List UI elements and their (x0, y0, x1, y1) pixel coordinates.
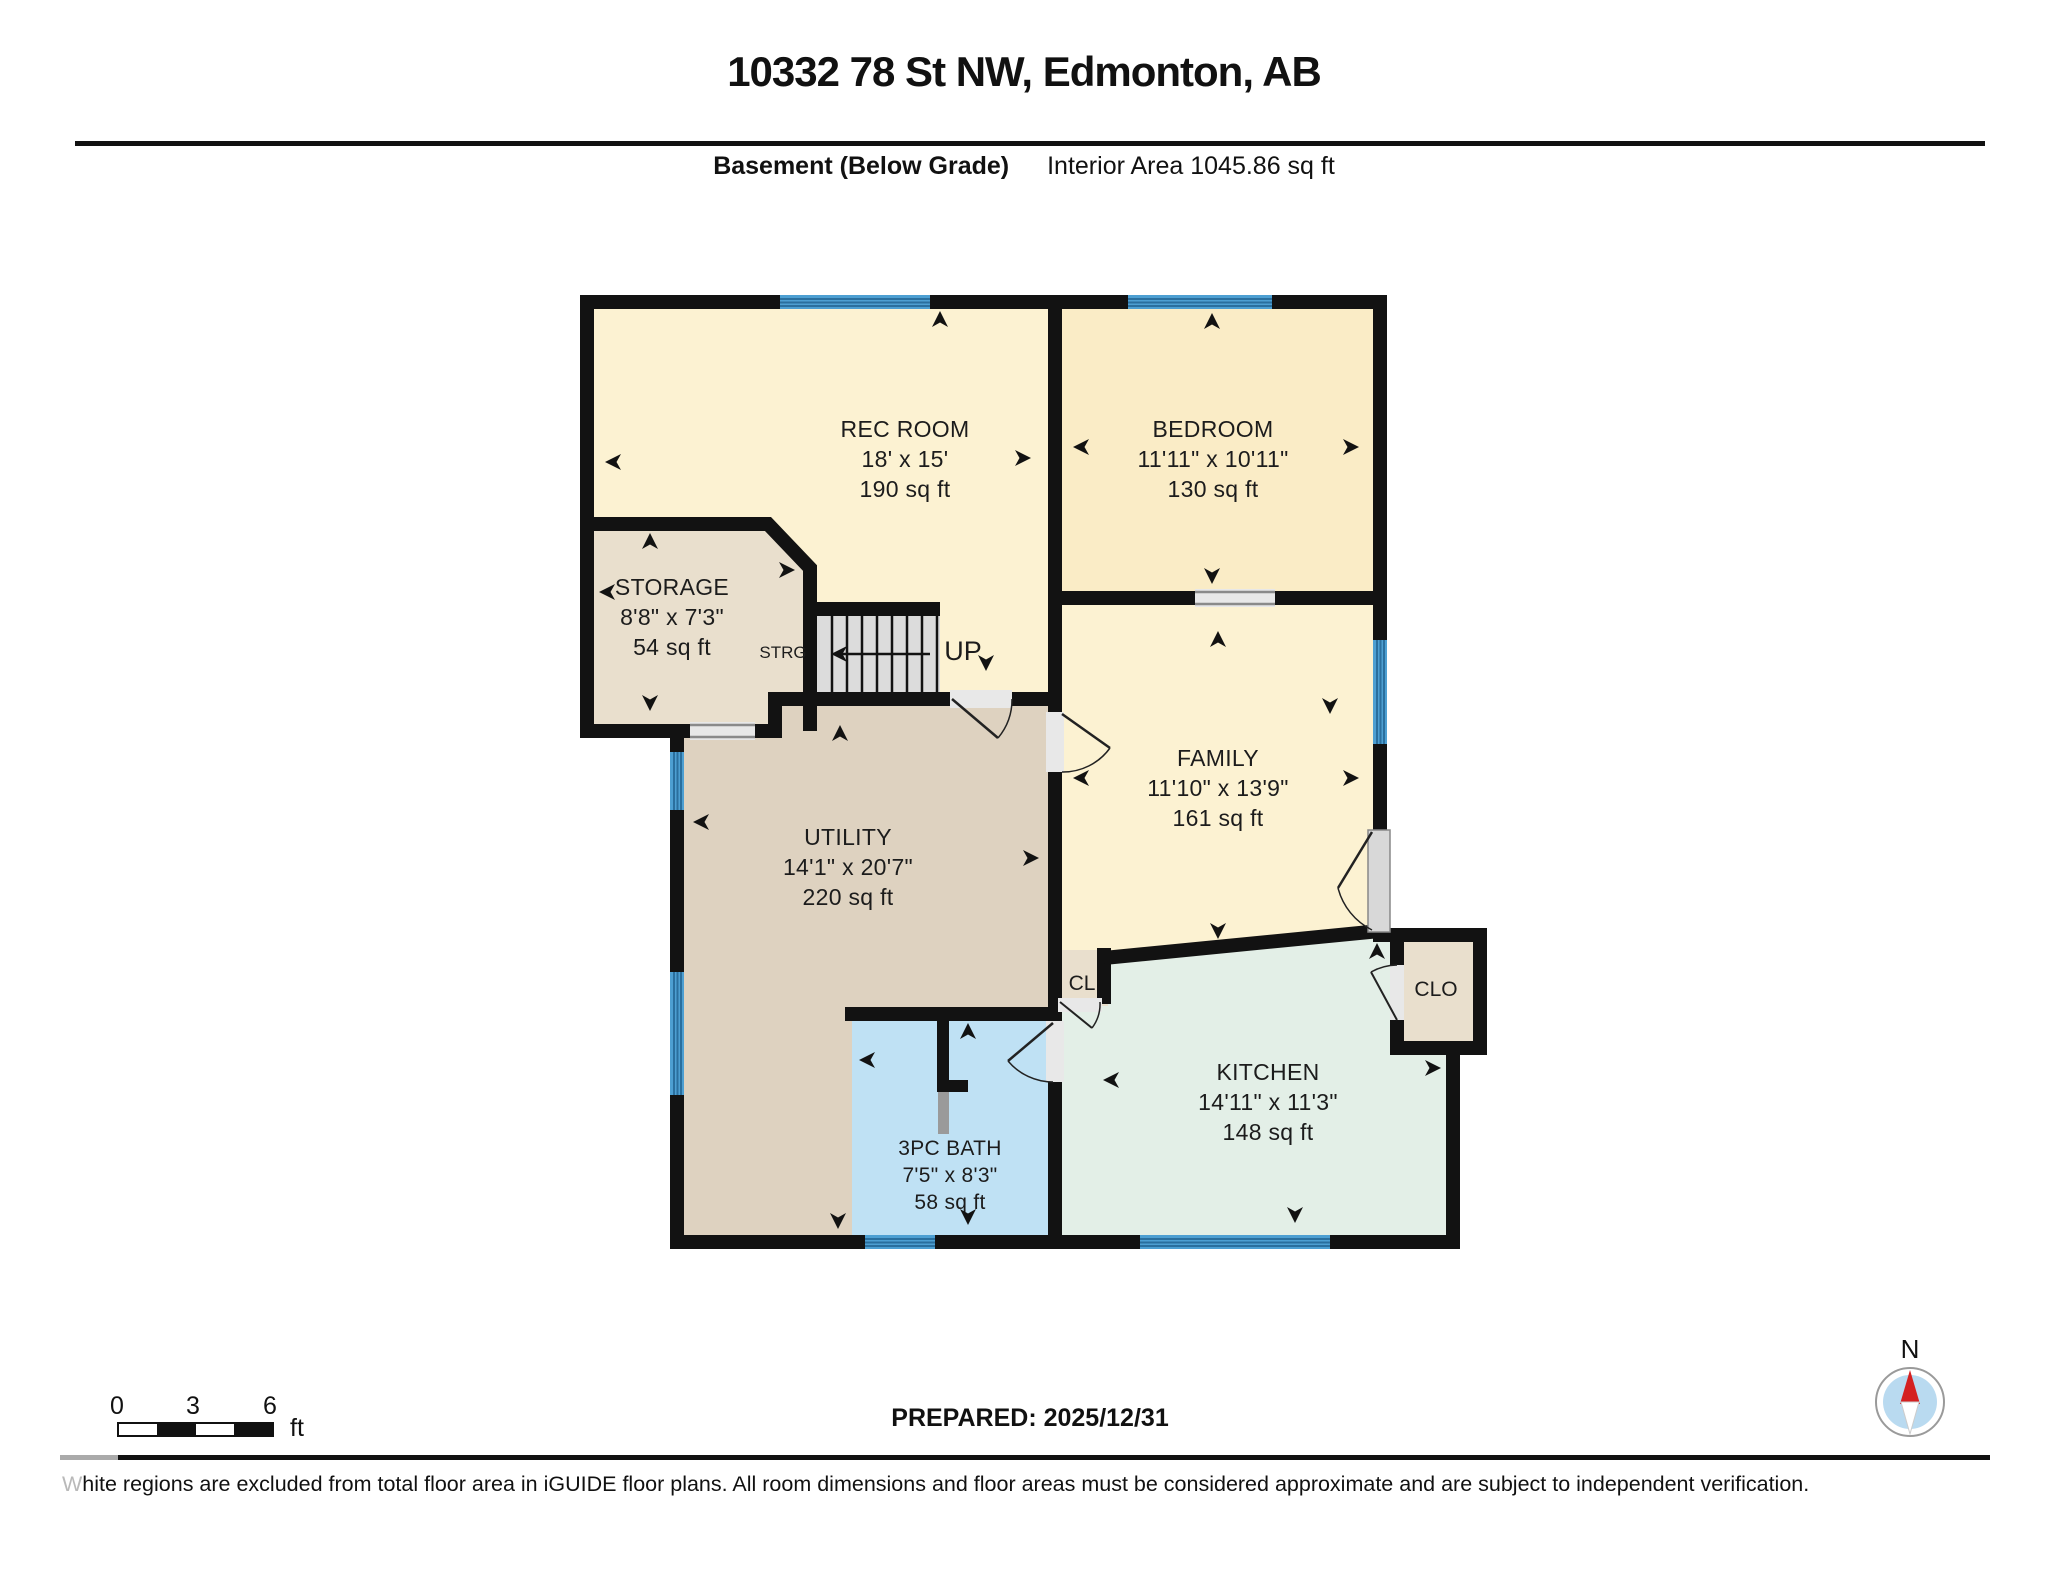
window-utility-upper (670, 752, 684, 810)
area-rec-room: 190 sq ft (860, 476, 951, 502)
label-strg: STRG (759, 643, 806, 662)
label-bath: 3PC BATH (898, 1137, 1002, 1160)
disclaimer-body: hite regions are excluded from total flo… (82, 1472, 1809, 1496)
floorplan-page: 10332 78 St NW, Edmonton, AB Basement (B… (0, 0, 2048, 1583)
scale-bar-segments (117, 1422, 274, 1437)
disclaimer-watermark-letter: W (62, 1472, 82, 1496)
window-kitchen (1140, 1235, 1330, 1249)
window-bedroom (1128, 295, 1272, 309)
dims-kitchen: 14'11" x 11'3" (1198, 1089, 1338, 1115)
dims-bath: 7'5" x 8'3" (902, 1164, 997, 1187)
staircase (817, 612, 940, 699)
disclaimer-text: White regions are excluded from total fl… (62, 1472, 1962, 1497)
area-utility: 220 sq ft (803, 884, 894, 910)
label-closet-cl: CL (1069, 972, 1096, 995)
dims-family: 11'10" x 13'9" (1147, 775, 1288, 801)
scale-tick-0: 0 (110, 1392, 124, 1421)
area-bedroom: 130 sq ft (1168, 476, 1259, 502)
window-rec (780, 295, 930, 309)
footer-divider-gray (60, 1455, 118, 1460)
scale-tick-6: 6 (263, 1392, 277, 1421)
scale-tick-3: 3 (186, 1392, 200, 1421)
label-utility: UTILITY (804, 824, 892, 850)
label-closet-clo: CLO (1414, 978, 1457, 1001)
compass-north-label: N (1901, 1334, 1920, 1364)
dims-rec-room: 18' x 15' (862, 446, 949, 472)
footer-divider (118, 1455, 1990, 1460)
dims-utility: 14'1" x 20'7" (783, 854, 913, 880)
area-storage: 54 sq ft (633, 634, 711, 660)
label-stairs-up: UP (944, 636, 982, 666)
dims-storage: 8'8" x 7'3" (620, 604, 724, 630)
window-bath (865, 1235, 935, 1249)
prepared-date: PREPARED: 2025/12/31 (830, 1404, 1230, 1433)
area-family: 161 sq ft (1173, 805, 1264, 831)
label-bedroom: BEDROOM (1153, 416, 1274, 442)
scale-unit-label: ft (290, 1414, 304, 1443)
window-family (1373, 640, 1387, 744)
label-storage: STORAGE (615, 574, 729, 600)
label-rec-room: REC ROOM (841, 416, 970, 442)
area-kitchen: 148 sq ft (1223, 1119, 1314, 1145)
window-utility-lower (670, 972, 684, 1095)
floorplan-drawing: REC ROOM 18' x 15' 190 sq ft BEDROOM 11'… (0, 0, 2048, 1583)
room-fills (587, 295, 1476, 1242)
bath-fixture (938, 1092, 949, 1134)
compass: N (1858, 1328, 1962, 1453)
label-family: FAMILY (1177, 745, 1259, 771)
label-kitchen: KITCHEN (1216, 1059, 1319, 1085)
scale-bar: 0 3 6 ft (90, 1392, 350, 1452)
dims-bedroom: 11'11" x 10'11" (1137, 446, 1288, 472)
